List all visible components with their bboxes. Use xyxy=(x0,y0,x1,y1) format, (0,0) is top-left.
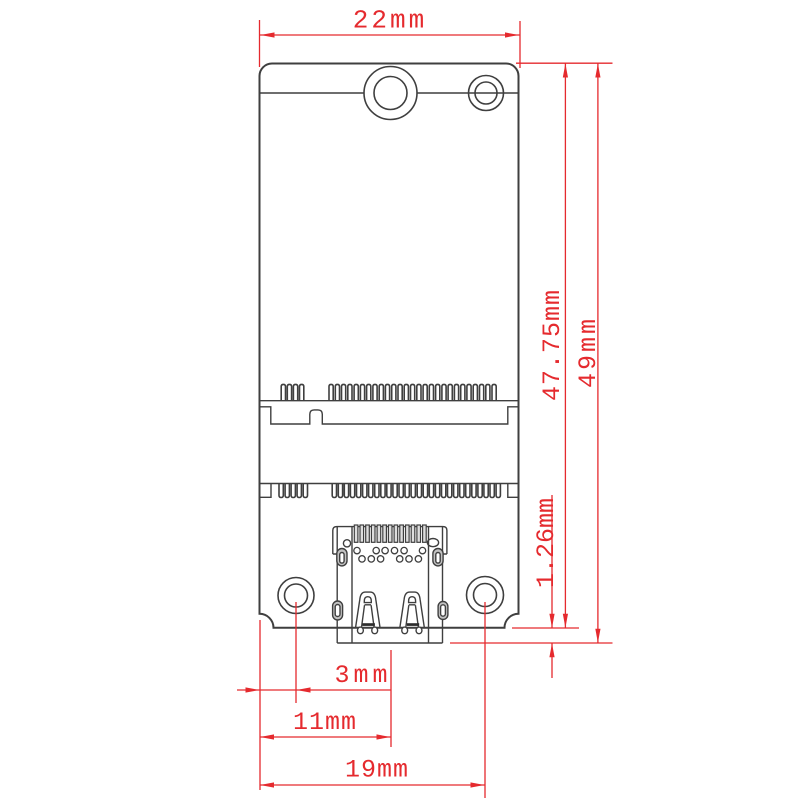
svg-text:47.75mm: 47.75mm xyxy=(538,289,567,401)
svg-text:49mm: 49mm xyxy=(574,316,603,388)
svg-text:19mm: 19mm xyxy=(345,756,409,785)
svg-text:3mm: 3mm xyxy=(334,661,391,690)
svg-text:11mm: 11mm xyxy=(293,708,357,737)
svg-text:22mm: 22mm xyxy=(353,6,427,36)
svg-text:1.26mm: 1.26mm xyxy=(532,498,561,588)
